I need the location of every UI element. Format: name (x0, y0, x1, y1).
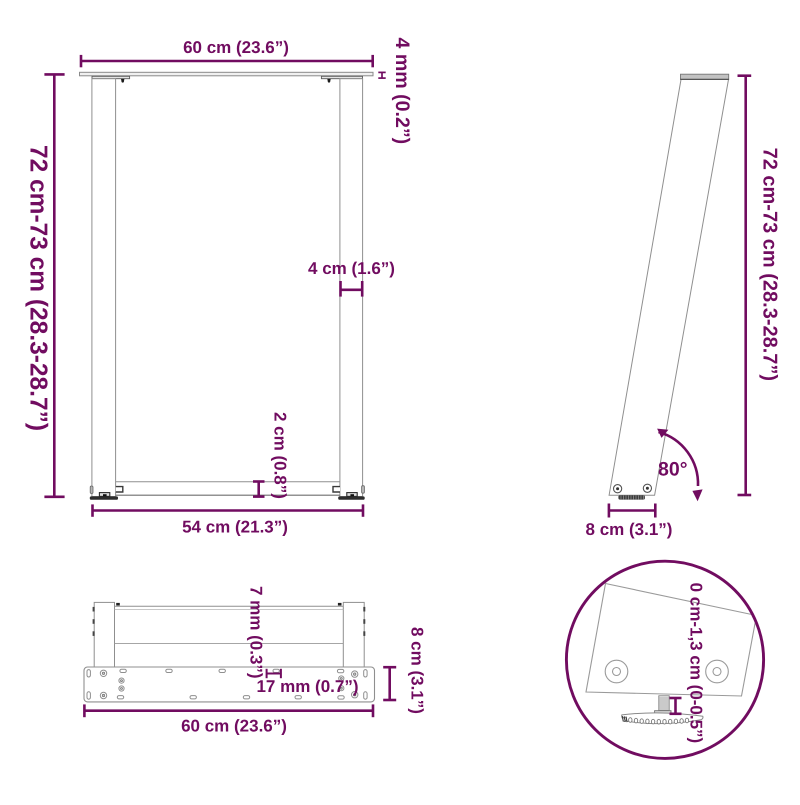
svg-text:80°: 80° (658, 459, 688, 481)
svg-text:60 cm (23.6”): 60 cm (23.6”) (181, 717, 287, 736)
svg-text:4 cm (1.6”): 4 cm (1.6”) (308, 259, 395, 278)
svg-text:8 cm (3.1”): 8 cm (3.1”) (586, 520, 673, 539)
svg-text:17 mm (0.7”): 17 mm (0.7”) (256, 677, 358, 696)
svg-text:8 cm (3.1”): 8 cm (3.1”) (408, 627, 427, 714)
svg-text:4 mm (0.2”): 4 mm (0.2”) (391, 38, 413, 145)
svg-text:54 cm (21.3”): 54 cm (21.3”) (182, 518, 288, 537)
svg-text:7 mm (0.3”): 7 mm (0.3”) (247, 586, 266, 679)
svg-text:72 cm-73 cm (28.3-28.7”): 72 cm-73 cm (28.3-28.7”) (759, 148, 781, 381)
svg-text:0 cm-1,3 cm (0-0.5”): 0 cm-1,3 cm (0-0.5”) (687, 583, 706, 744)
svg-text:72 cm-73 cm (28.3-28.7”): 72 cm-73 cm (28.3-28.7”) (25, 145, 52, 431)
svg-text:60 cm (23.6”): 60 cm (23.6”) (183, 38, 289, 57)
svg-text:2 cm (0.8”): 2 cm (0.8”) (271, 412, 290, 499)
